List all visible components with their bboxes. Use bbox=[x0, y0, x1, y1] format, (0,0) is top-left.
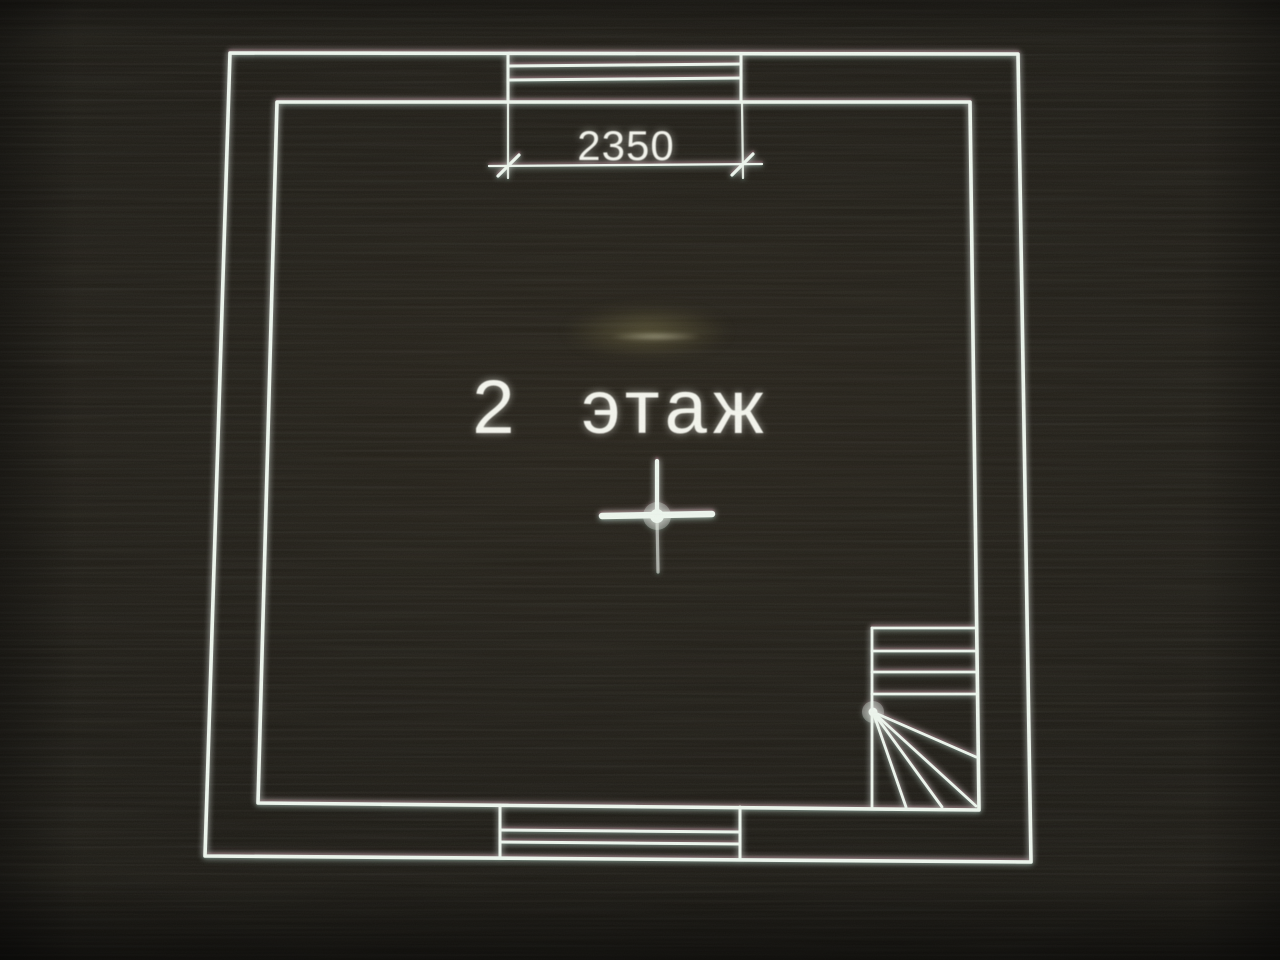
screen-photo: 2350 2 этаж bbox=[0, 0, 1280, 960]
vignette bbox=[0, 0, 1280, 960]
